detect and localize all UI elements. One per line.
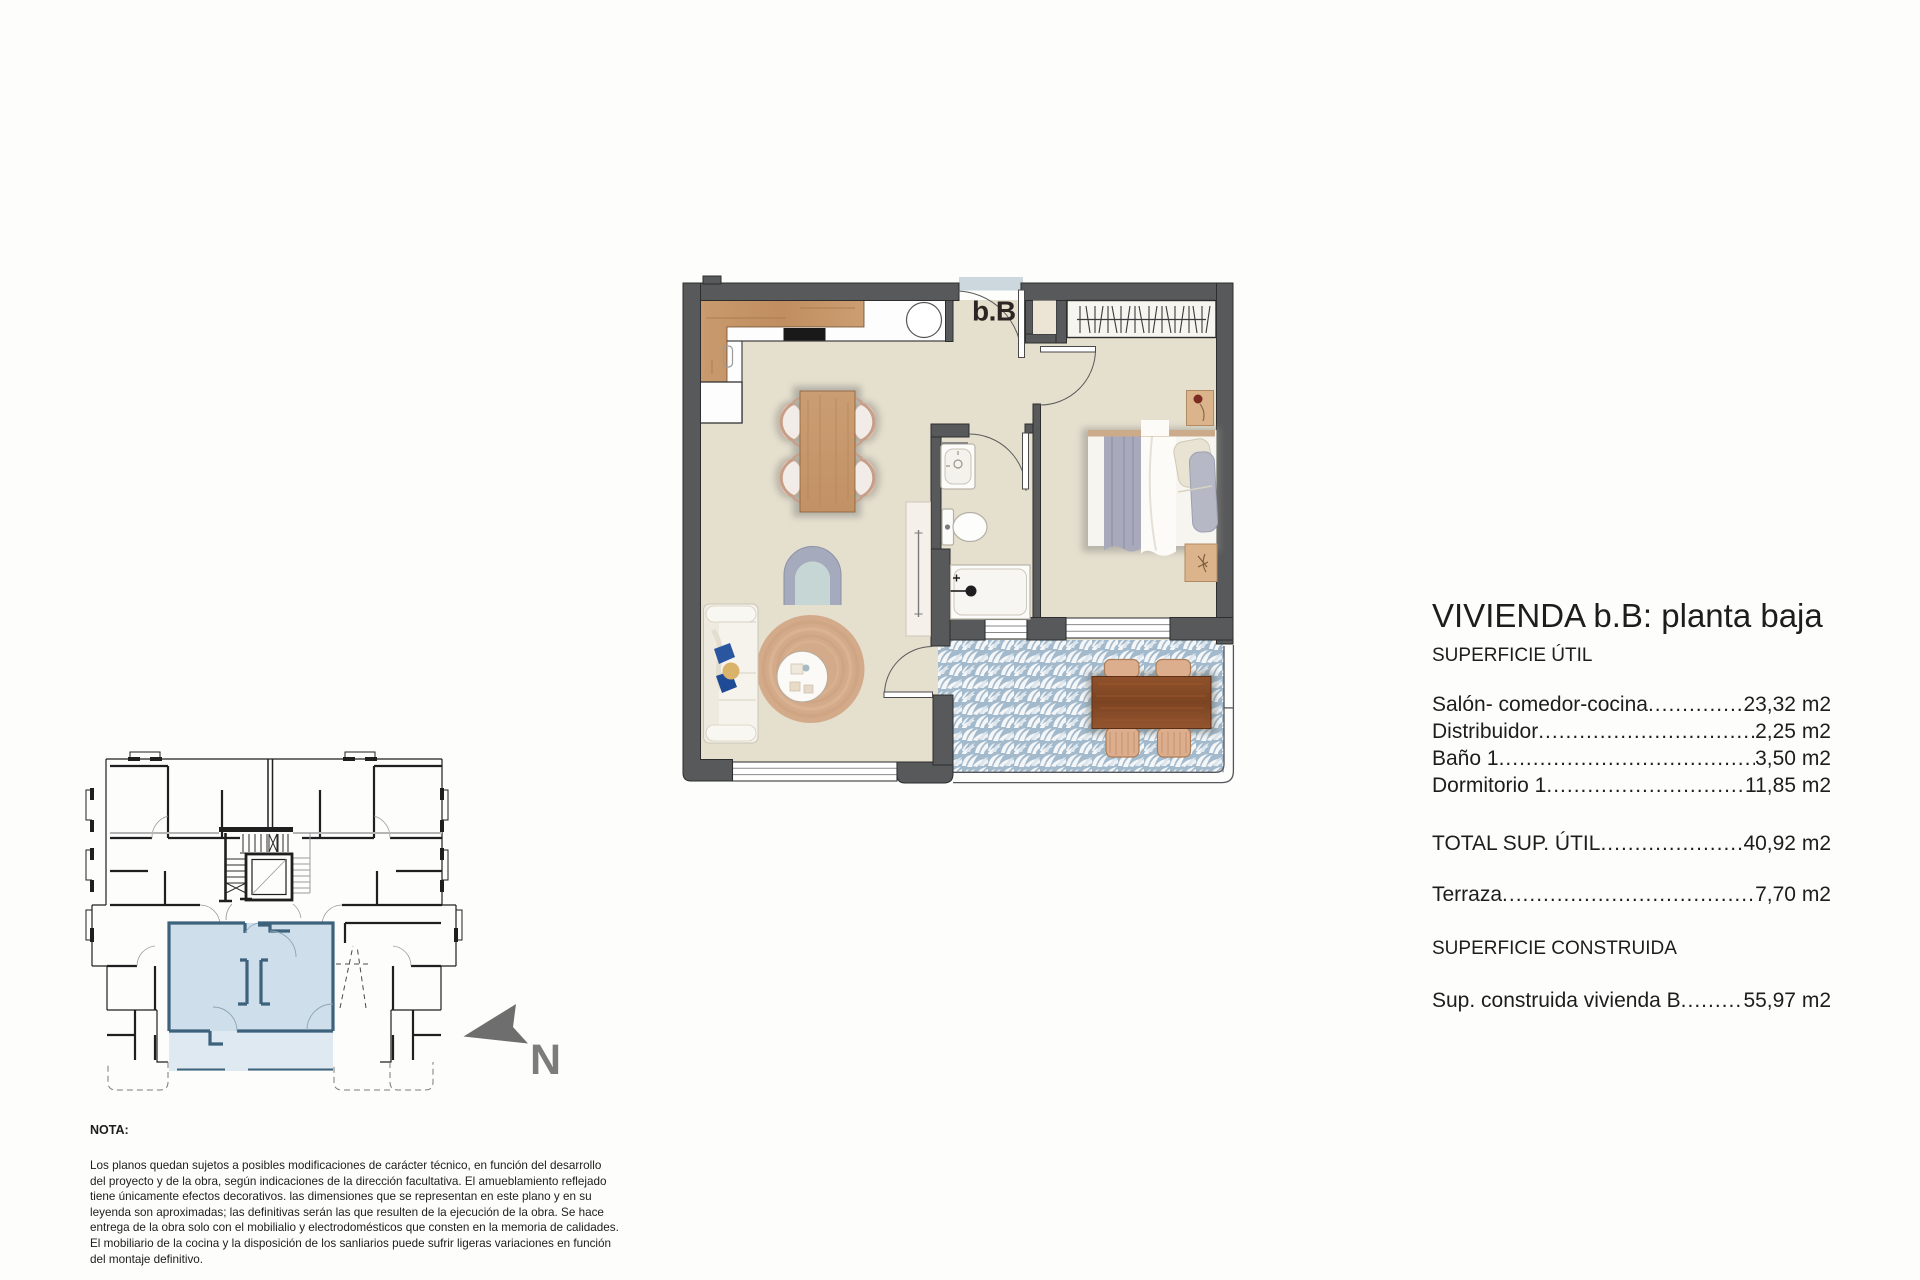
svg-text:N: N [530, 1036, 561, 1084]
svg-text:b.B: b.B [972, 296, 1016, 327]
